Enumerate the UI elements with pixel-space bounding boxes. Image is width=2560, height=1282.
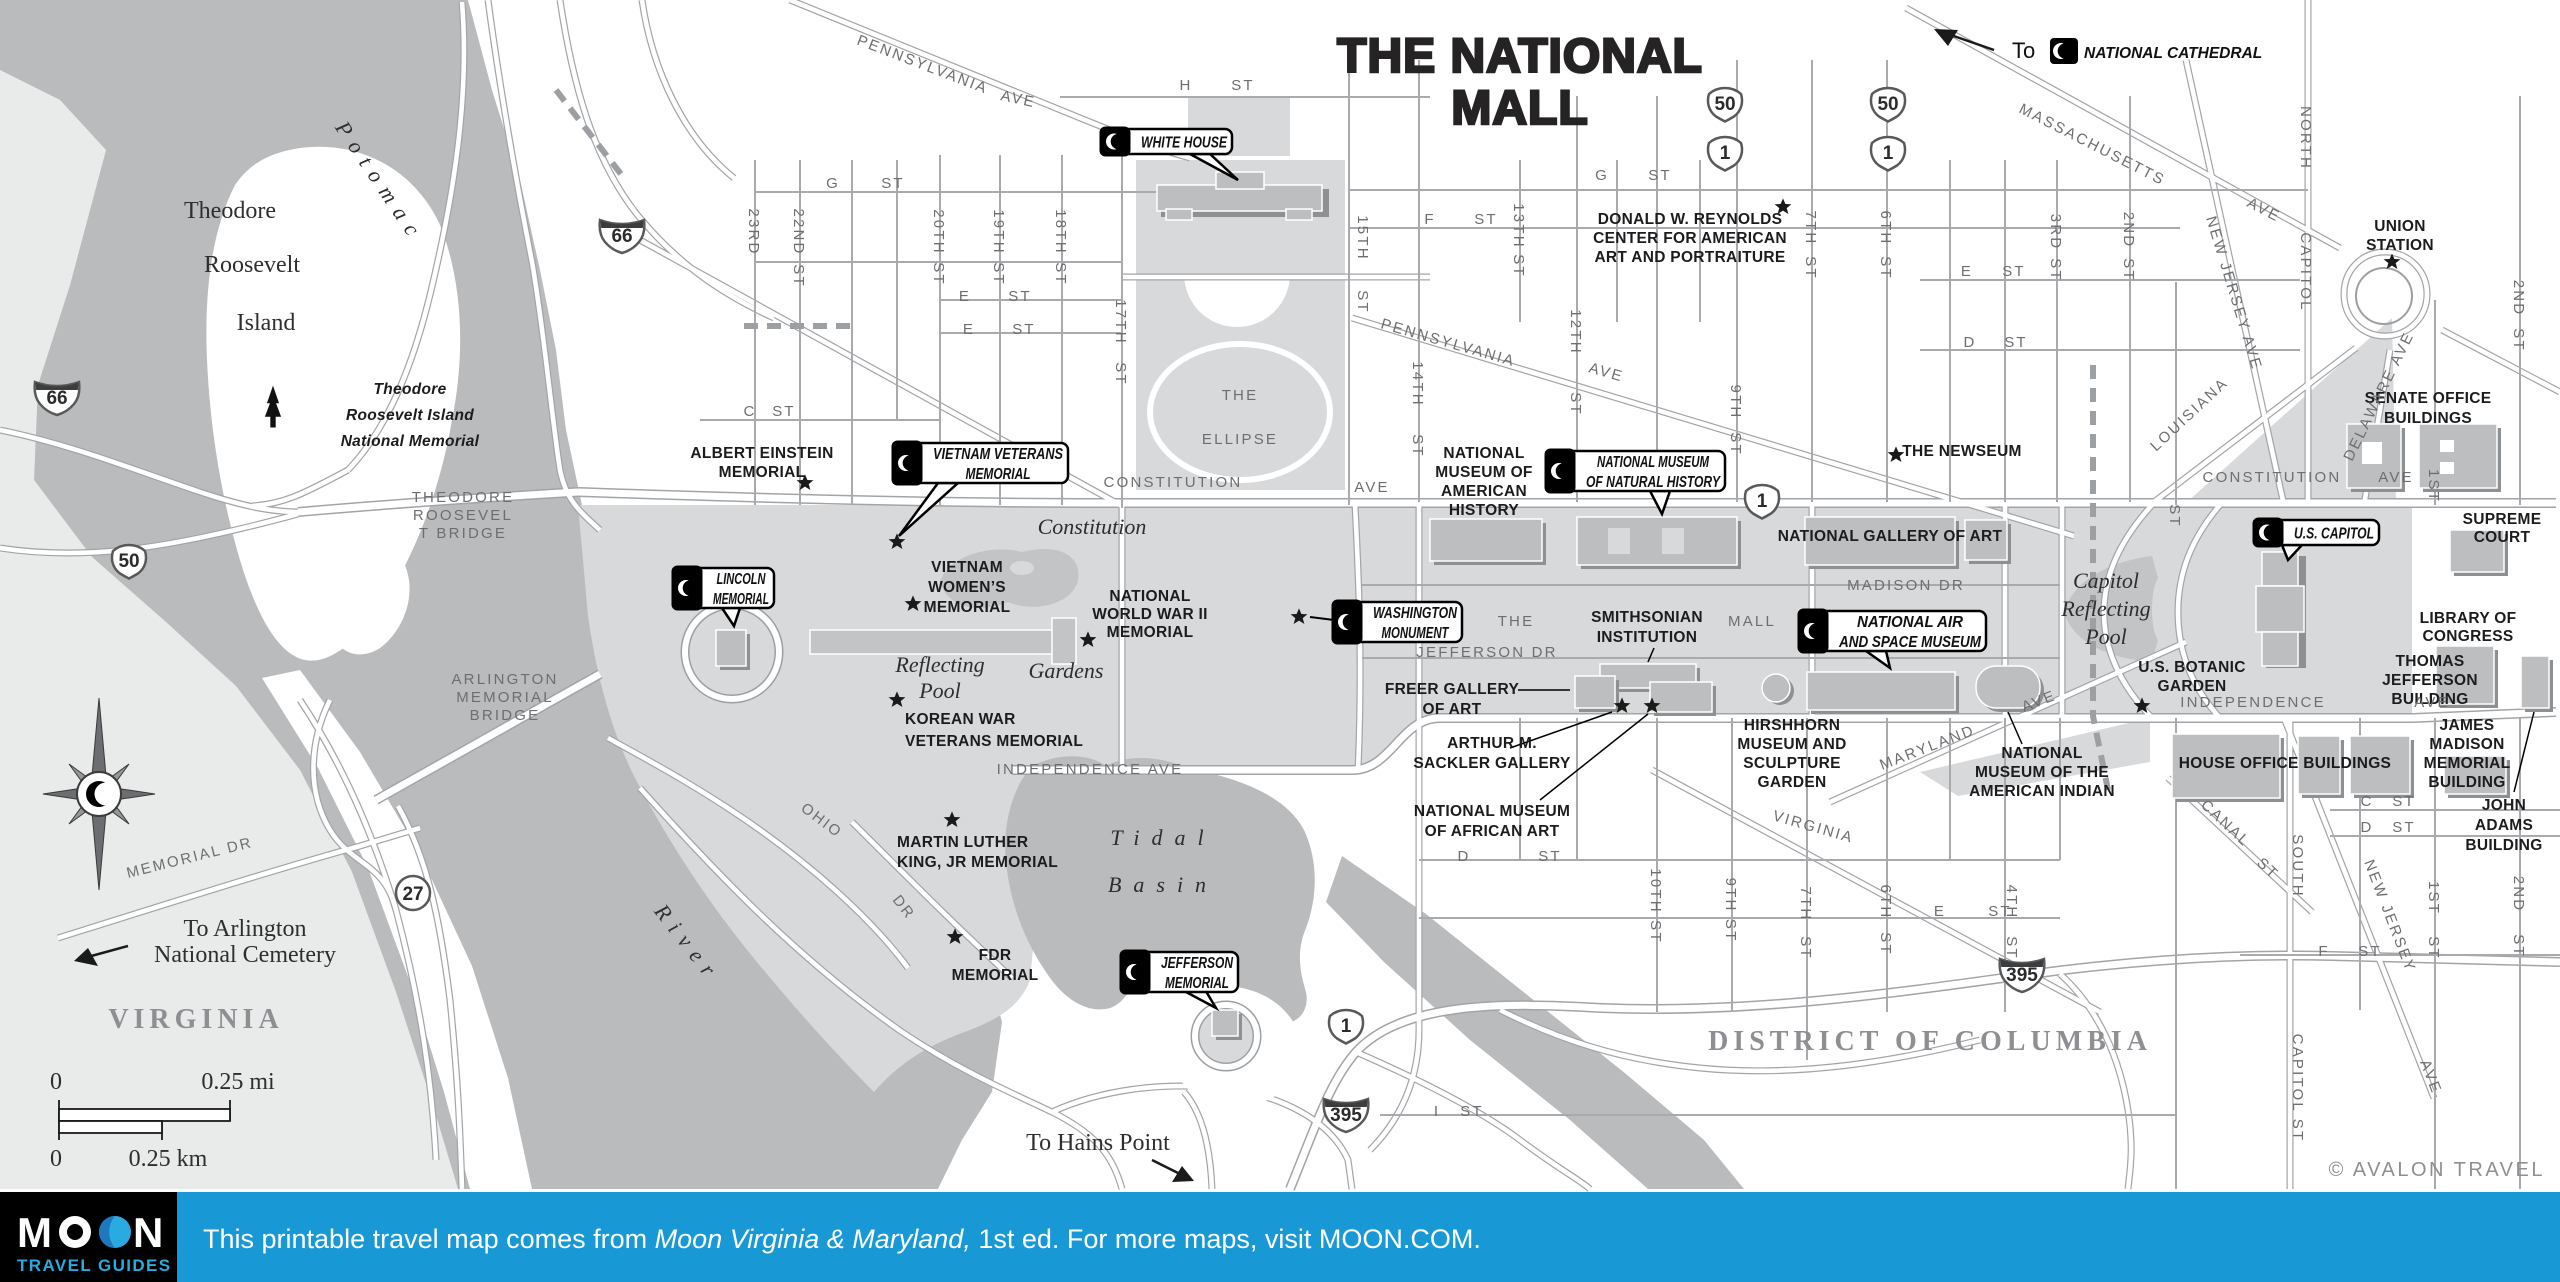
svg-text:To Hains Point: To Hains Point xyxy=(1026,1130,1170,1156)
svg-text:U.S. CAPITOL: U.S. CAPITOL xyxy=(2294,526,2374,543)
svg-text:To: To xyxy=(2012,38,2035,63)
svg-text:ADAMS: ADAMS xyxy=(2475,817,2533,834)
svg-text:INDEPENDENCE AVE: INDEPENDENCE AVE xyxy=(997,761,1184,778)
svg-text:Theodore: Theodore xyxy=(184,198,276,224)
svg-text:ST: ST xyxy=(2004,334,2028,351)
svg-text:ST: ST xyxy=(1877,932,1894,956)
svg-text:3RD: 3RD xyxy=(2047,214,2064,251)
svg-text:14TH: 14TH xyxy=(1409,361,1426,406)
svg-text:0: 0 xyxy=(50,1069,62,1095)
svg-text:MARTIN LUTHER: MARTIN LUTHER xyxy=(897,834,1028,851)
svg-text:10TH ST: 10TH ST xyxy=(1647,868,1664,943)
svg-text:ST: ST xyxy=(2425,936,2442,960)
svg-text:1: 1 xyxy=(1757,491,1768,512)
svg-text:National Memorial: National Memorial xyxy=(341,433,480,450)
svg-text:1: 1 xyxy=(1883,143,1894,164)
svg-text:INDEPENDENCE: INDEPENDENCE xyxy=(2180,694,2326,711)
svg-text:23RD: 23RD xyxy=(745,208,762,255)
svg-text:SOUTH: SOUTH xyxy=(2289,834,2306,898)
svg-text:NATIONAL MUSEUM: NATIONAL MUSEUM xyxy=(1414,803,1570,820)
svg-text:Capitol: Capitol xyxy=(2073,568,2139,593)
svg-text:KING, JR MEMORIAL: KING, JR MEMORIAL xyxy=(897,854,1058,871)
svg-text:50: 50 xyxy=(1714,94,1735,115)
svg-text:MEMORIAL: MEMORIAL xyxy=(2424,755,2511,772)
svg-text:MEMORIAL: MEMORIAL xyxy=(1107,624,1194,641)
svg-text:20TH: 20TH xyxy=(930,209,947,254)
svg-text:ARLINGTON: ARLINGTON xyxy=(451,671,558,688)
svg-text:THOMAS: THOMAS xyxy=(2396,653,2465,670)
svg-text:C: C xyxy=(2360,793,2373,810)
svg-text:NATIONAL CATHEDRAL: NATIONAL CATHEDRAL xyxy=(2084,45,2262,62)
svg-text:Island: Island xyxy=(237,310,296,336)
svg-text:Reflecting: Reflecting xyxy=(2060,596,2150,621)
svg-text:ST: ST xyxy=(1012,321,1036,338)
svg-text:ST: ST xyxy=(990,262,1007,286)
svg-text:NATIONAL MUSEUM: NATIONAL MUSEUM xyxy=(1597,454,1710,471)
svg-text:T BRIDGE: T BRIDGE xyxy=(419,525,507,542)
svg-text:ST: ST xyxy=(2166,504,2183,528)
svg-text:NATIONAL: NATIONAL xyxy=(2001,745,2082,762)
svg-text:WHITE HOUSE: WHITE HOUSE xyxy=(1141,135,1228,152)
svg-text:SCULPTURE: SCULPTURE xyxy=(1743,755,1840,772)
svg-text:HISTORY: HISTORY xyxy=(1449,502,1520,519)
svg-text:ST: ST xyxy=(1648,167,1672,184)
svg-text:27: 27 xyxy=(402,884,423,905)
svg-text:ST: ST xyxy=(1052,262,1069,286)
svg-text:ART AND PORTRAITURE: ART AND PORTRAITURE xyxy=(1594,249,1785,266)
svg-text:6TH: 6TH xyxy=(1877,885,1894,920)
svg-text:THE: THE xyxy=(1498,613,1535,630)
svg-text:MALL: MALL xyxy=(1451,82,1588,135)
svg-text:19TH: 19TH xyxy=(990,209,1007,254)
svg-text:JAMES: JAMES xyxy=(2440,717,2495,734)
svg-text:CAPITOL ST: CAPITOL ST xyxy=(2289,1034,2306,1143)
svg-text:50: 50 xyxy=(1877,94,1898,115)
svg-text:Pool: Pool xyxy=(2084,624,2127,649)
svg-text:NATIONAL AIR: NATIONAL AIR xyxy=(1857,614,1964,631)
svg-text:THE NEWSEUM: THE NEWSEUM xyxy=(1902,443,2022,460)
svg-text:MEMORIAL: MEMORIAL xyxy=(1165,975,1229,992)
svg-text:ST: ST xyxy=(1877,256,1894,280)
svg-text:AVE: AVE xyxy=(2414,694,2450,711)
svg-text:F: F xyxy=(1424,211,1435,228)
svg-text:Pool: Pool xyxy=(918,678,961,703)
svg-text:LINCOLN: LINCOLN xyxy=(717,571,767,588)
svg-text:DONALD W. REYNOLDS: DONALD W. REYNOLDS xyxy=(1598,211,1783,228)
svg-text:ST: ST xyxy=(2510,328,2527,352)
svg-text:F: F xyxy=(2318,943,2329,960)
svg-text:OF NATURAL HISTORY: OF NATURAL HISTORY xyxy=(1586,474,1721,491)
svg-text:NATIONAL: NATIONAL xyxy=(1109,588,1190,605)
svg-text:MADISON: MADISON xyxy=(2429,736,2504,753)
svg-text:LIBRARY OF: LIBRARY OF xyxy=(2420,610,2517,627)
svg-text:12TH: 12TH xyxy=(1567,309,1584,354)
svg-text:ST: ST xyxy=(1354,290,1371,314)
svg-text:VIRGINIA: VIRGINIA xyxy=(108,1004,283,1035)
svg-text:MEMORIAL: MEMORIAL xyxy=(713,591,769,608)
svg-text:Roosevelt Island: Roosevelt Island xyxy=(346,407,474,424)
svg-text:JEFFERSON DR: JEFFERSON DR xyxy=(1416,644,1557,661)
svg-text:National Cemetery: National Cemetery xyxy=(154,942,336,968)
svg-text:COURT: COURT xyxy=(2474,529,2531,546)
svg-text:CENTER FOR AMERICAN: CENTER FOR AMERICAN xyxy=(1593,230,1787,247)
svg-text:ST: ST xyxy=(2510,934,2527,958)
svg-text:AMERICAN: AMERICAN xyxy=(1441,483,1527,500)
svg-text:FDR: FDR xyxy=(979,947,1012,964)
svg-text:AVE: AVE xyxy=(2378,469,2414,486)
svg-text:ST: ST xyxy=(2002,263,2026,280)
svg-text:To Arlington: To Arlington xyxy=(184,916,307,942)
svg-text:9TH ST: 9TH ST xyxy=(1722,878,1739,943)
svg-text:WOMEN’S: WOMEN’S xyxy=(928,579,1006,596)
svg-text:ST: ST xyxy=(1409,434,1426,458)
svg-text:13TH: 13TH xyxy=(1510,203,1527,248)
svg-text:SACKLER GALLERY: SACKLER GALLERY xyxy=(1413,755,1571,772)
svg-text:MEMORIAL: MEMORIAL xyxy=(924,599,1011,616)
svg-text:G: G xyxy=(826,175,840,192)
svg-text:D: D xyxy=(1963,334,1976,351)
svg-text:22ND: 22ND xyxy=(790,208,807,255)
svg-text:1ST: 1ST xyxy=(2425,469,2442,503)
svg-text:2ND: 2ND xyxy=(2120,212,2137,249)
svg-text:SUPREME: SUPREME xyxy=(2463,511,2542,528)
svg-text:MONUMENT: MONUMENT xyxy=(1382,625,1450,642)
svg-text:Reflecting: Reflecting xyxy=(894,652,984,677)
svg-text:GARDEN: GARDEN xyxy=(1758,774,1827,791)
svg-text:ROOSEVEL: ROOSEVEL xyxy=(413,507,513,524)
svg-text:U.S. BOTANIC: U.S. BOTANIC xyxy=(2138,659,2246,676)
svg-text:MEMORIAL: MEMORIAL xyxy=(952,967,1039,984)
svg-text:E: E xyxy=(963,321,975,338)
svg-text:KOREAN WAR: KOREAN WAR xyxy=(905,711,1016,728)
svg-text:NATIONAL GALLERY OF ART: NATIONAL GALLERY OF ART xyxy=(1778,528,2003,545)
svg-text:1: 1 xyxy=(1341,1016,1352,1037)
svg-text:ST: ST xyxy=(1727,432,1744,456)
svg-text:MUSEUM OF: MUSEUM OF xyxy=(1435,464,1532,481)
svg-text:ST: ST xyxy=(1474,211,1498,228)
svg-text:STATION: STATION xyxy=(2366,237,2434,254)
svg-text:TRAVEL GUIDES: TRAVEL GUIDES xyxy=(17,1256,172,1275)
svg-text:MEMORIAL: MEMORIAL xyxy=(719,464,806,481)
svg-text:ST: ST xyxy=(1460,1103,1484,1120)
svg-text:AND SPACE MUSEUM: AND SPACE MUSEUM xyxy=(1838,634,1982,651)
svg-text:FREER GALLERY: FREER GALLERY xyxy=(1385,681,1520,698)
svg-text:ST: ST xyxy=(2392,819,2416,836)
svg-text:Theodore: Theodore xyxy=(373,381,446,398)
svg-text:395: 395 xyxy=(1330,1105,1362,1126)
svg-text:UNION: UNION xyxy=(2374,218,2425,235)
svg-text:INSTITUTION: INSTITUTION xyxy=(1597,629,1698,646)
svg-text:2ND: 2ND xyxy=(2510,876,2527,913)
svg-text:GARDEN: GARDEN xyxy=(2158,678,2227,695)
svg-text:H: H xyxy=(1179,77,1192,94)
svg-text:9TH: 9TH xyxy=(1727,385,1744,420)
svg-text:18TH: 18TH xyxy=(1052,209,1069,254)
svg-text:MUSEUM OF THE: MUSEUM OF THE xyxy=(1975,764,2109,781)
svg-text:7TH: 7TH xyxy=(1797,887,1814,922)
svg-text:2ND: 2ND xyxy=(2510,280,2527,317)
svg-text:15TH: 15TH xyxy=(1354,215,1371,260)
svg-text:DISTRICT OF COLUMBIA: DISTRICT OF COLUMBIA xyxy=(1708,1026,2152,1057)
svg-text:OF ART: OF ART xyxy=(1423,701,1482,718)
svg-text:ST: ST xyxy=(1988,903,2012,920)
svg-text:ST: ST xyxy=(1510,254,1527,278)
svg-text:1ST: 1ST xyxy=(2425,881,2442,915)
svg-text:Gardens: Gardens xyxy=(1029,658,1104,683)
svg-text:395: 395 xyxy=(2006,965,2038,986)
svg-text:ST: ST xyxy=(2003,936,2020,960)
svg-text:SMITHSONIAN: SMITHSONIAN xyxy=(1591,609,1703,626)
svg-text:M: M xyxy=(17,1209,53,1256)
svg-text:D: D xyxy=(1457,848,1470,865)
svg-text:ST: ST xyxy=(1802,256,1819,280)
svg-text:VIETNAM VETERANS: VIETNAM VETERANS xyxy=(933,446,1064,463)
svg-text:G: G xyxy=(1595,167,1609,184)
svg-text:E: E xyxy=(1934,903,1946,920)
svg-text:WASHINGTON: WASHINGTON xyxy=(1373,605,1458,622)
svg-text:AVE: AVE xyxy=(1354,479,1390,496)
svg-text:AMERICAN INDIAN: AMERICAN INDIAN xyxy=(1969,783,2115,800)
svg-text:ST: ST xyxy=(772,403,796,420)
svg-text:6TH: 6TH xyxy=(1877,211,1894,246)
svg-text:CAPITOL: CAPITOL xyxy=(2297,232,2314,311)
svg-text:VIETNAM: VIETNAM xyxy=(931,559,1003,576)
svg-text:WORLD WAR II: WORLD WAR II xyxy=(1092,606,1208,623)
svg-text:HOUSE OFFICE BUILDINGS: HOUSE OFFICE BUILDINGS xyxy=(2179,755,2391,772)
svg-text:NORTH: NORTH xyxy=(2297,106,2314,170)
svg-text:ELLIPSE: ELLIPSE xyxy=(1202,431,1278,448)
svg-text:This printable travel map come: This printable travel map comes from Moo… xyxy=(203,1224,1481,1254)
svg-text:Constitution: Constitution xyxy=(1038,514,1147,539)
svg-text:OF AFRICAN ART: OF AFRICAN ART xyxy=(1425,823,1560,840)
svg-text:BRIDGE: BRIDGE xyxy=(470,707,541,724)
svg-text:BUILDING: BUILDING xyxy=(2428,774,2505,791)
svg-text:ST: ST xyxy=(2392,793,2416,810)
svg-text:THE NATIONAL: THE NATIONAL xyxy=(1337,30,1703,83)
svg-text:0.25 km: 0.25 km xyxy=(129,1146,208,1172)
svg-text:0.25 mi: 0.25 mi xyxy=(201,1069,275,1095)
svg-text:ST: ST xyxy=(2358,943,2382,960)
svg-text:MEMORIAL: MEMORIAL xyxy=(456,689,554,706)
svg-text:ARTHUR M.: ARTHUR M. xyxy=(1447,735,1537,752)
svg-text:I: I xyxy=(1434,1103,1440,1120)
svg-text:66: 66 xyxy=(46,388,67,409)
svg-text:ST: ST xyxy=(2047,258,2064,282)
svg-text:7TH: 7TH xyxy=(1802,211,1819,246)
svg-text:E: E xyxy=(959,288,971,305)
svg-text:N: N xyxy=(133,1209,163,1256)
svg-text:E: E xyxy=(1961,263,1973,280)
svg-text:Basin: Basin xyxy=(1108,872,1218,897)
svg-text:CONGRESS: CONGRESS xyxy=(2422,628,2513,645)
svg-text:ST: ST xyxy=(1538,848,1562,865)
svg-text:CONSTITUTION: CONSTITUTION xyxy=(2203,469,2342,486)
svg-text:ALBERT EINSTEIN: ALBERT EINSTEIN xyxy=(690,445,833,462)
svg-text:BUILDINGS: BUILDINGS xyxy=(2384,410,2472,427)
svg-text:ST: ST xyxy=(1112,362,1129,386)
svg-text:MADISON DR: MADISON DR xyxy=(1847,577,1965,594)
svg-text:ST: ST xyxy=(1567,392,1584,416)
svg-text:MEMORIAL: MEMORIAL xyxy=(966,466,1031,483)
svg-text:ST: ST xyxy=(1231,77,1255,94)
svg-text:JEFFERSON: JEFFERSON xyxy=(2382,672,2478,689)
svg-text:MALL: MALL xyxy=(1728,613,1776,630)
svg-text:JEFFERSON: JEFFERSON xyxy=(1161,955,1234,972)
svg-text:50: 50 xyxy=(118,551,139,572)
svg-text:THEODORE: THEODORE xyxy=(412,489,515,506)
svg-text:1: 1 xyxy=(1720,143,1731,164)
svg-text:CONSTITUTION: CONSTITUTION xyxy=(1104,474,1243,491)
svg-text:NATIONAL: NATIONAL xyxy=(1443,445,1524,462)
svg-text:ST: ST xyxy=(1797,936,1814,960)
svg-text:ST: ST xyxy=(2120,258,2137,282)
svg-text:© AVALON TRAVEL: © AVALON TRAVEL xyxy=(2329,1159,2545,1181)
svg-text:Roosevelt: Roosevelt xyxy=(204,252,300,278)
svg-text:BUILDING: BUILDING xyxy=(2465,837,2542,854)
svg-text:ST: ST xyxy=(1008,288,1032,305)
svg-text:THE: THE xyxy=(1222,387,1259,404)
svg-text:VETERANS MEMORIAL: VETERANS MEMORIAL xyxy=(905,733,1083,750)
svg-text:ST: ST xyxy=(930,262,947,286)
svg-text:C: C xyxy=(743,403,756,420)
svg-text:HIRSHHORN: HIRSHHORN xyxy=(1744,717,1841,734)
svg-text:MUSEUM AND: MUSEUM AND xyxy=(1737,736,1846,753)
svg-text:ST: ST xyxy=(881,175,905,192)
svg-text:ST: ST xyxy=(790,264,807,288)
svg-text:66: 66 xyxy=(611,226,632,247)
svg-text:0: 0 xyxy=(50,1146,62,1172)
svg-text:Tidal: Tidal xyxy=(1110,825,1215,850)
svg-text:D: D xyxy=(2360,819,2373,836)
svg-text:17TH: 17TH xyxy=(1112,299,1129,344)
svg-text:JOHN: JOHN xyxy=(2482,797,2526,814)
